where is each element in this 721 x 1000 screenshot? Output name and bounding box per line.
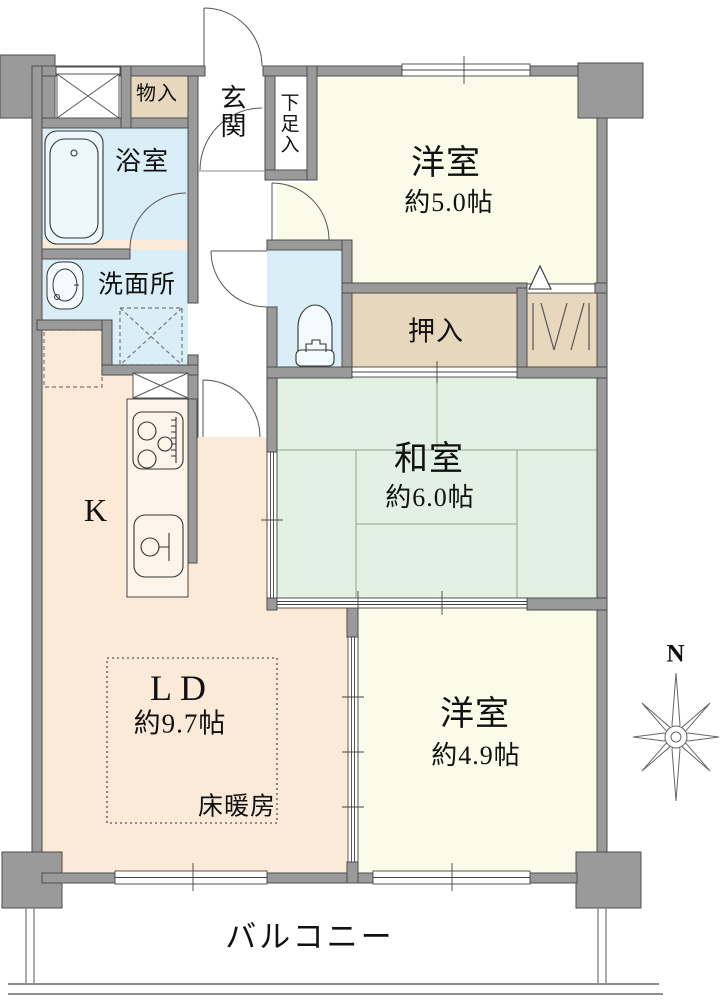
room-label-western-room-49: 洋室: [440, 698, 510, 732]
room-label-western-room-5: 洋室: [411, 147, 481, 181]
room-label-futon-closet: 押入: [408, 319, 464, 346]
room-label-shoe-cabinet: 下足入: [279, 93, 298, 156]
room-label-balcony: バルコニー: [225, 922, 394, 953]
room-label-kitchen: K: [84, 494, 108, 526]
compass-rose-icon: [633, 673, 719, 801]
room-floors: [37, 66, 608, 878]
room-size-western-room-49: 約4.9帖: [431, 743, 521, 769]
room-size-western-room-5: 約5.0帖: [404, 190, 494, 216]
kitchen-counter: [127, 399, 188, 597]
room-label-washroom: 洗面所: [98, 273, 176, 298]
floor-plan: 洋室 約5.0帖 押入 和室 約6.0帖 洋室 約4.9帖 K LD 約9.7帖…: [0, 0, 721, 1000]
room-size-living-dining: 約9.7帖: [134, 711, 227, 738]
room-label-storage: 物入: [136, 84, 178, 104]
toilet-icon: [296, 305, 334, 366]
pipe-space-icon: [133, 373, 188, 398]
room-label-living-dining: LD: [150, 670, 214, 706]
room-label-japanese-room: 和室: [394, 443, 464, 477]
washbasin-icon: [47, 262, 83, 309]
bathtub-icon: [45, 131, 103, 244]
floor-plan-drawing: [0, 0, 721, 1000]
floor-heating-label: 床暖房: [198, 795, 276, 820]
room-label-entrance: 玄関: [218, 84, 244, 140]
compass-north-label: N: [666, 642, 685, 667]
meter-box-icon: [57, 74, 119, 118]
room-size-japanese-room: 約6.0帖: [385, 485, 475, 511]
room-label-bathroom: 浴室: [115, 149, 169, 175]
